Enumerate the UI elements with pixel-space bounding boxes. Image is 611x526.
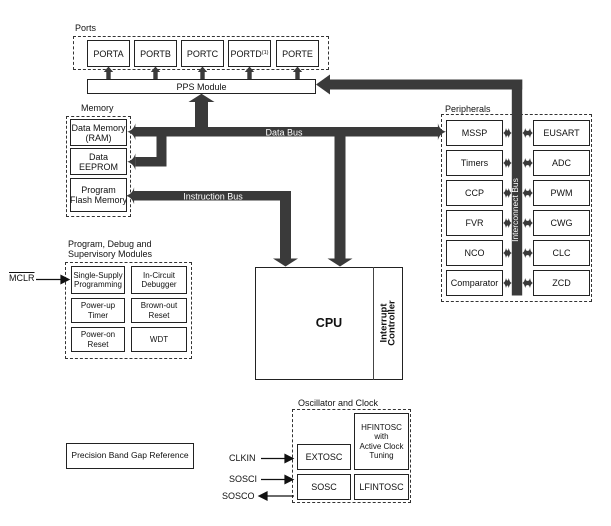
svg-text:Instruction Bus: Instruction Bus	[183, 192, 243, 202]
svg-text:Interconnect Bus: Interconnect Bus	[510, 178, 520, 242]
svg-text:Data Bus: Data Bus	[265, 128, 303, 138]
